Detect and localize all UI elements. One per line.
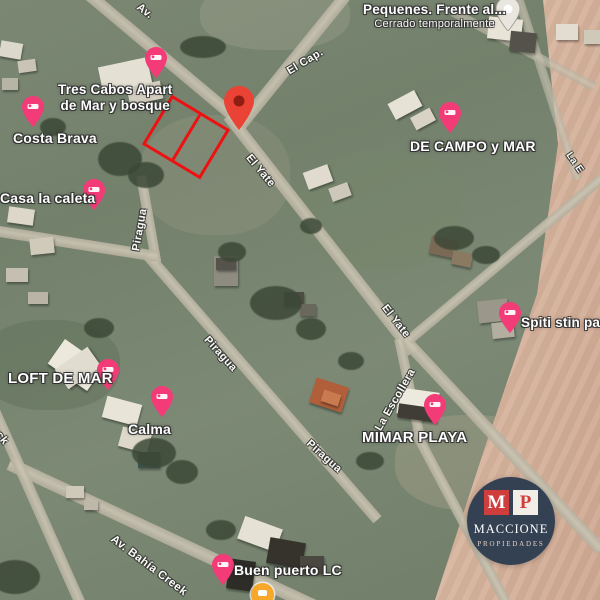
street-label: Piragua	[304, 438, 344, 476]
place-status: Cerrado temporalmente	[363, 18, 506, 31]
place-label-casa-la-caleta[interactable]: Casa la caleta	[0, 190, 95, 206]
tree	[166, 460, 198, 484]
tree	[206, 520, 236, 540]
place-label-mimar-playa[interactable]: MIMAR PLAYA	[362, 429, 467, 446]
place-label-spiti[interactable]: Spiti stin para	[521, 315, 600, 331]
building	[7, 206, 35, 225]
building	[2, 78, 18, 90]
street-label: Av.	[134, 1, 155, 21]
logo-subtitle: PROPIEDADES	[477, 540, 544, 548]
orange-marker[interactable]	[251, 583, 274, 600]
building	[410, 108, 436, 131]
place-label-pequenes[interactable]: Pequenes. Frente al... Cerrado temporalm…	[363, 2, 506, 30]
place-label-calma[interactable]: Calma	[128, 421, 171, 437]
tree	[472, 246, 500, 264]
place-label-buen-puerto[interactable]: Buen puerto LC	[234, 562, 342, 578]
building	[300, 304, 316, 316]
tree	[356, 452, 384, 470]
tree	[300, 218, 322, 234]
building	[28, 292, 48, 304]
maccione-logo: M P MACCIONE PROPIEDADES	[467, 477, 555, 565]
tree	[128, 162, 164, 188]
lodging-pin-icon[interactable]	[439, 102, 461, 138]
building	[29, 237, 55, 255]
place-label-loft-de-mar[interactable]: LOFT DE MAR	[8, 370, 113, 387]
logo-monogram-m: M	[484, 490, 509, 515]
building	[584, 30, 600, 44]
tree	[250, 286, 302, 320]
tree	[180, 36, 226, 58]
tree	[0, 560, 40, 594]
lodging-pin-icon[interactable]	[22, 96, 44, 132]
place-label-tres-cabos[interactable]: Tres Cabos Apart de Mar y bosque	[58, 82, 172, 113]
building	[66, 486, 84, 498]
lodging-pin-icon[interactable]	[424, 394, 446, 430]
lodging-pin-icon[interactable]	[499, 302, 521, 338]
lodging-pin-icon[interactable]	[212, 554, 234, 590]
building	[84, 500, 98, 510]
satellite-map[interactable]: Av. El Cap. El Yate El Yate Piragua Pira…	[0, 0, 600, 600]
place-label-costa-brava[interactable]: Costa Brava	[13, 130, 97, 146]
logo-name: MACCIONE	[474, 522, 549, 537]
building	[17, 59, 36, 73]
place-label-de-campo[interactable]: DE CAMPO y MAR	[410, 138, 536, 154]
tree	[434, 226, 474, 250]
lodging-pin-icon[interactable]	[145, 47, 167, 83]
tree	[84, 318, 114, 338]
logo-monogram-p: P	[513, 490, 538, 515]
tree	[218, 242, 246, 262]
lot-divider	[171, 114, 200, 160]
tree	[338, 352, 364, 370]
building	[6, 268, 28, 282]
tree	[296, 318, 326, 340]
building	[451, 250, 473, 268]
building	[0, 40, 23, 60]
lodging-pin-icon[interactable]	[151, 386, 173, 422]
red-map-pin[interactable]	[224, 86, 254, 135]
building	[556, 24, 578, 40]
